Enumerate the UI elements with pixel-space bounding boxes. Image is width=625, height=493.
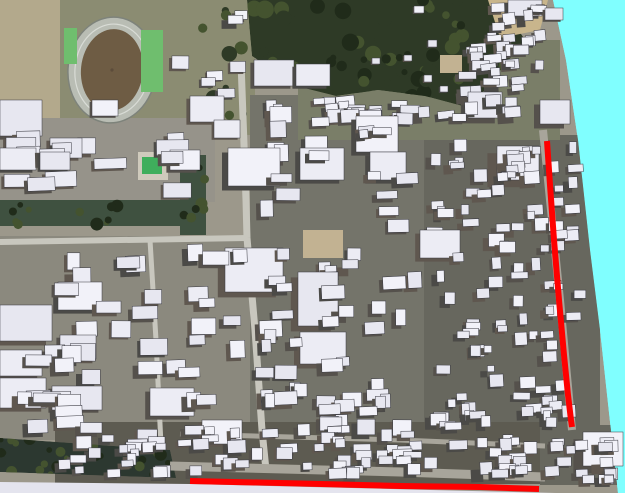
building-roof — [70, 455, 86, 463]
building-roof — [524, 10, 534, 21]
building-roof — [521, 406, 533, 416]
building-roof — [254, 60, 294, 86]
building-roof — [583, 475, 595, 484]
building-roof — [532, 147, 540, 155]
building-roof — [256, 367, 274, 377]
building-roof — [0, 305, 52, 341]
building — [92, 301, 121, 316]
building-roof — [604, 475, 614, 483]
building-roof — [431, 154, 441, 166]
building-roof — [477, 288, 490, 298]
building-roof — [477, 438, 487, 448]
building-roof — [524, 442, 537, 454]
building-roof — [373, 127, 392, 134]
building-roof — [376, 191, 397, 199]
building-roof — [546, 417, 557, 427]
building — [439, 86, 448, 93]
building-roof — [319, 404, 341, 415]
building-roof — [600, 457, 613, 467]
building-roof — [491, 68, 501, 76]
building-roof — [513, 45, 529, 55]
building-roof — [448, 399, 456, 407]
building-roof — [453, 253, 464, 262]
building-roof — [497, 172, 508, 181]
building — [379, 276, 407, 293]
building-roof — [67, 253, 80, 270]
building — [371, 58, 380, 65]
building — [198, 251, 229, 268]
building-roof — [481, 416, 491, 427]
building — [274, 447, 293, 461]
building-roof — [359, 406, 377, 416]
building-roof — [545, 466, 560, 477]
building — [269, 310, 293, 321]
building-roof — [543, 351, 558, 362]
building-roof — [309, 151, 329, 161]
building-roof — [55, 405, 82, 417]
building-roof — [408, 271, 422, 288]
building-roof — [492, 22, 505, 31]
building-roof — [522, 37, 534, 46]
building-roof — [313, 98, 324, 105]
building — [161, 183, 192, 200]
building-roof — [568, 177, 578, 189]
building-roof — [236, 460, 250, 468]
building-roof — [515, 466, 527, 475]
building-roof — [193, 438, 209, 450]
building-roof — [554, 185, 563, 192]
building-roof — [265, 394, 275, 408]
building-roof — [303, 462, 312, 470]
building-roof — [274, 391, 298, 405]
building-roof — [189, 335, 205, 345]
building-roof — [252, 448, 263, 460]
building-roof — [511, 76, 527, 85]
building-roof — [372, 301, 386, 314]
building — [128, 306, 158, 323]
building-roof — [396, 456, 411, 465]
building-roof — [505, 61, 514, 67]
building-roof — [323, 97, 335, 104]
building-roof — [191, 318, 215, 335]
building-roof — [335, 439, 345, 448]
building-roof — [484, 345, 492, 352]
building-roof — [328, 426, 342, 433]
building-roof — [80, 422, 102, 433]
sports-court — [64, 28, 77, 64]
building-roof — [535, 386, 550, 394]
building-roof — [277, 248, 289, 260]
building-roof — [445, 292, 455, 304]
building — [141, 290, 161, 307]
building — [52, 283, 79, 298]
building-roof — [531, 257, 540, 270]
building-roof — [275, 365, 297, 379]
building — [272, 365, 297, 381]
building-roof — [511, 84, 524, 92]
building-roof — [230, 61, 246, 72]
building-roof — [203, 251, 229, 265]
building-roof — [298, 424, 310, 436]
building-roof — [372, 58, 380, 64]
building-roof — [557, 457, 571, 466]
building-roof — [347, 467, 360, 478]
building — [413, 6, 424, 14]
building-roof — [0, 148, 36, 170]
building-roof — [540, 100, 570, 124]
building-roof — [261, 339, 271, 352]
building-roof — [314, 444, 324, 452]
building — [158, 151, 184, 166]
building-roof — [172, 56, 189, 69]
building-roof — [424, 75, 432, 82]
building-roof — [452, 114, 466, 122]
building-roof — [185, 425, 204, 434]
building — [543, 8, 563, 22]
building-roof — [89, 448, 101, 458]
building — [423, 75, 432, 83]
building — [22, 355, 52, 369]
sports-court — [141, 30, 163, 92]
building-roof — [277, 283, 293, 292]
building-roof — [598, 442, 612, 451]
building-roof — [214, 120, 240, 138]
building — [0, 305, 52, 346]
building-roof — [121, 460, 133, 467]
building-roof — [545, 306, 553, 314]
building-roof — [418, 106, 430, 117]
building-roof — [201, 78, 215, 87]
building-roof — [524, 171, 540, 185]
building-roof — [459, 72, 477, 80]
building-roof — [364, 321, 384, 334]
building-roof — [359, 129, 368, 138]
building — [175, 367, 200, 380]
building-roof — [92, 100, 118, 116]
building-roof — [505, 106, 521, 117]
building-roof — [454, 139, 467, 151]
building-roof — [107, 469, 120, 478]
building-roof — [445, 422, 462, 430]
building-roof — [491, 3, 505, 12]
building-roof — [519, 313, 527, 325]
building-roof — [408, 464, 421, 475]
building-roof — [178, 440, 192, 447]
building-side — [480, 371, 487, 377]
building-roof — [144, 290, 161, 304]
building-roof — [471, 345, 481, 356]
building-roof — [228, 15, 243, 24]
building-roof — [534, 29, 546, 41]
building-roof — [515, 332, 528, 346]
building-roof — [339, 306, 354, 318]
building-roof — [568, 164, 584, 172]
building-roof — [132, 306, 158, 319]
building — [446, 440, 468, 452]
building-roof — [40, 152, 70, 170]
building — [403, 55, 412, 62]
building-roof — [437, 270, 445, 282]
road — [0, 238, 247, 242]
building-roof — [450, 162, 464, 169]
building-roof — [156, 443, 166, 450]
building-roof — [163, 183, 191, 198]
building-roof — [262, 429, 278, 438]
park-tree — [225, 111, 234, 120]
building-roof — [197, 394, 217, 405]
building-roof — [569, 142, 576, 154]
building — [292, 64, 330, 89]
building-roof — [379, 456, 393, 464]
building — [24, 177, 56, 194]
building-roof — [465, 102, 478, 115]
building-roof — [379, 206, 399, 215]
building-roof — [75, 466, 84, 474]
building-roof — [574, 290, 586, 298]
building — [319, 285, 345, 302]
building-roof — [55, 358, 74, 373]
building-roof — [233, 249, 247, 263]
building-roof — [424, 457, 437, 468]
building-roof — [140, 338, 168, 355]
building-roof — [27, 419, 48, 433]
building-roof — [461, 205, 469, 215]
building-roof — [541, 245, 549, 252]
building-roof — [199, 298, 215, 308]
building-roof — [474, 169, 487, 182]
building-roof — [153, 466, 167, 477]
building-roof — [368, 171, 381, 179]
building-roof — [260, 200, 273, 217]
park-tree — [198, 23, 207, 32]
building-roof — [511, 272, 528, 279]
building-roof — [512, 223, 524, 230]
building-roof — [227, 440, 246, 454]
building-roof — [449, 440, 467, 450]
building — [385, 219, 409, 234]
building — [113, 257, 140, 271]
vacant-lot — [303, 230, 343, 258]
building-roof — [492, 469, 509, 478]
building-roof — [25, 355, 51, 366]
building — [38, 152, 70, 172]
vacant-lot — [440, 55, 462, 73]
building-roof — [138, 361, 163, 374]
building-roof — [396, 309, 406, 325]
building-roof — [347, 248, 361, 260]
building — [199, 78, 216, 88]
building-roof — [401, 431, 414, 438]
building — [427, 40, 437, 48]
building — [272, 188, 300, 203]
building-roof — [271, 174, 292, 182]
building-roof — [565, 204, 580, 214]
scene-canvas[interactable] — [0, 0, 625, 493]
building-roof — [436, 365, 450, 374]
building-roof — [76, 436, 91, 449]
building — [362, 321, 385, 337]
building-roof — [397, 113, 413, 125]
building-roof — [496, 224, 510, 232]
building-roof — [357, 419, 375, 435]
building — [91, 158, 127, 172]
building-roof — [396, 172, 418, 184]
building-roof — [111, 321, 131, 338]
building-roof — [54, 283, 78, 296]
building-roof — [492, 184, 505, 195]
building-roof — [270, 106, 292, 122]
building-roof — [205, 427, 215, 435]
building-roof — [575, 440, 588, 450]
building-roof — [457, 331, 469, 338]
building-roof — [440, 86, 448, 92]
building-roof — [489, 276, 503, 287]
building-roof — [82, 370, 100, 385]
building-roof — [161, 151, 183, 163]
building-roof — [270, 121, 286, 138]
building-roof — [550, 441, 563, 451]
building-roof — [94, 158, 127, 170]
building-roof — [382, 276, 406, 290]
building — [228, 61, 246, 74]
building-roof — [119, 445, 127, 453]
building-roof — [296, 64, 330, 86]
building-roof — [428, 40, 437, 47]
building-roof — [223, 316, 241, 326]
building-roof — [520, 376, 536, 388]
building-roof — [414, 6, 424, 13]
building-roof — [117, 257, 140, 269]
building-roof — [547, 340, 558, 350]
building-roof — [276, 447, 292, 459]
building-roof — [463, 219, 479, 227]
building-roof — [56, 416, 83, 429]
building-roof — [545, 8, 563, 20]
building-roof — [541, 331, 554, 339]
building-roof — [321, 285, 345, 299]
map-viewport[interactable] — [0, 0, 625, 493]
building-roof — [527, 211, 535, 219]
building-roof — [102, 435, 114, 442]
building — [0, 148, 36, 173]
building-roof — [404, 55, 412, 61]
building-roof — [290, 338, 303, 348]
building-roof — [487, 366, 494, 372]
building-roof — [230, 340, 245, 358]
building-roof — [0, 100, 42, 136]
building-roof — [76, 321, 97, 337]
building — [90, 100, 118, 118]
building-roof — [272, 310, 293, 319]
building-roof — [477, 189, 491, 198]
building — [250, 60, 294, 89]
building-roof — [190, 96, 224, 122]
building-roof — [456, 393, 467, 401]
building-roof — [513, 392, 530, 399]
building-roof — [27, 177, 55, 192]
building-roof — [498, 325, 508, 332]
building-roof — [483, 78, 499, 85]
building — [212, 120, 240, 140]
building-roof — [499, 241, 515, 252]
building-roof — [487, 35, 501, 42]
building-roof — [230, 428, 240, 438]
building-roof — [566, 446, 575, 454]
park-tree — [222, 46, 237, 61]
building-roof — [58, 459, 70, 469]
building-roof — [535, 60, 544, 70]
building-roof — [492, 257, 502, 269]
building-roof — [73, 268, 91, 283]
building-roof — [513, 295, 523, 306]
building-roof — [342, 260, 358, 269]
building — [376, 206, 399, 218]
building-roof — [321, 359, 343, 373]
building — [109, 321, 131, 340]
building-roof — [96, 301, 121, 313]
building-roof — [276, 188, 300, 200]
building-roof — [190, 466, 202, 476]
building-roof — [489, 374, 503, 387]
building — [137, 338, 168, 357]
building-roof — [178, 367, 200, 378]
building — [169, 56, 189, 71]
building-roof — [566, 312, 581, 320]
building-roof — [322, 316, 339, 327]
building-roof — [381, 429, 392, 441]
building-roof — [329, 468, 347, 479]
building-roof — [388, 219, 409, 232]
building-roof — [437, 209, 453, 218]
building-roof — [312, 117, 330, 127]
